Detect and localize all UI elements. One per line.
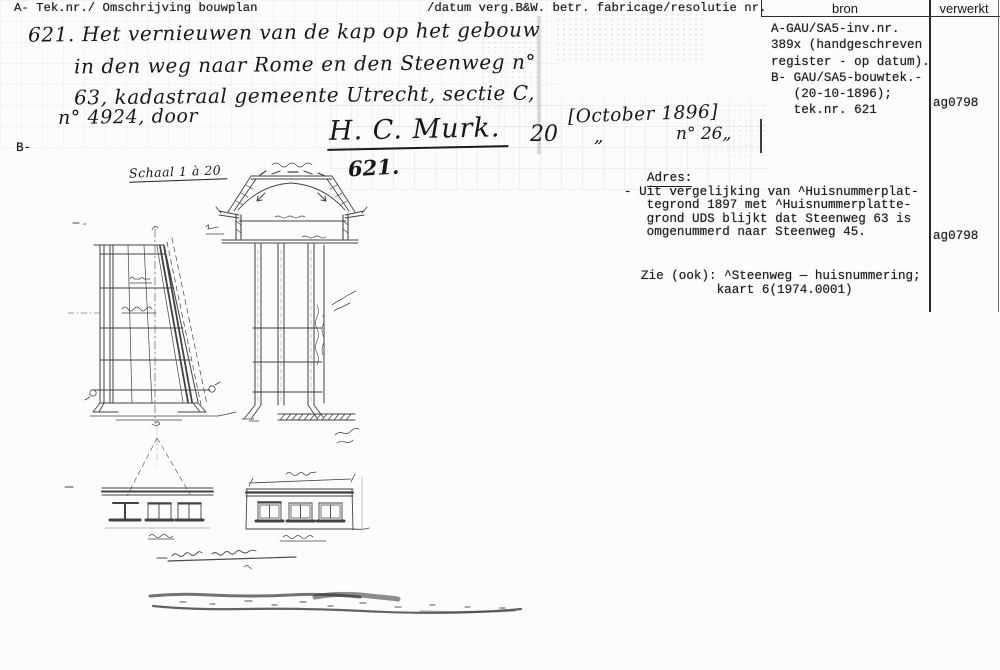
column-header-bron: bron [761, 1, 929, 16]
table-rule-header [761, 16, 1000, 17]
verwerkt-code-1: ag0798 [933, 96, 978, 110]
adres-text: - Uit vergelijking van ^Huisnummerplat- … [624, 186, 919, 240]
form-header-left: A- Tek.nr./ Omschrijving bouwplan [14, 1, 258, 15]
margin-label-b: B- [16, 141, 31, 155]
dashed-roof-outline [127, 423, 190, 496]
archive-card-scan: A- Tek.nr./ Omschrijving bouwplan /datum… [0, 0, 1000, 670]
roof-plan-drawing [68, 226, 236, 425]
facade-elevation-left [65, 487, 213, 539]
facade-elevation-right [246, 472, 369, 541]
form-header-middle: /datum verg.B&W. betr. fabricage/resolut… [427, 1, 766, 15]
handwritten-signature: H. C. Murk. [327, 112, 509, 151]
scale-bar-smudge [150, 594, 521, 613]
scan-speckle [555, 12, 705, 64]
table-rule-right [998, 0, 999, 312]
column-header-verwerkt: verwerkt [930, 1, 998, 16]
handwritten-ditto-mark: „ [594, 126, 603, 147]
handwritten-caption-squiggle [157, 550, 296, 569]
table-rule-fragment [760, 119, 762, 153]
handwritten-line-2: in den weg naar Rome en den Steenweg n° [74, 50, 536, 79]
wall-section-drawing [242, 244, 359, 443]
technical-drawing [60, 155, 580, 625]
handwritten-day: 20 [530, 122, 558, 147]
verwerkt-code-2: ag0798 [933, 229, 978, 243]
handwritten-line-4: n° 4924, door [58, 105, 198, 129]
roof-truss-section-drawing [73, 163, 367, 243]
handwritten-resolutie-nr: n° 26„ [676, 124, 731, 144]
zie-ook-text: Zie (ook): ^Steenweg — huisnummering; ka… [641, 270, 921, 297]
bron-entry-text: A-GAU/SA5-inv.nr. 389x (handgeschreven r… [771, 21, 930, 119]
